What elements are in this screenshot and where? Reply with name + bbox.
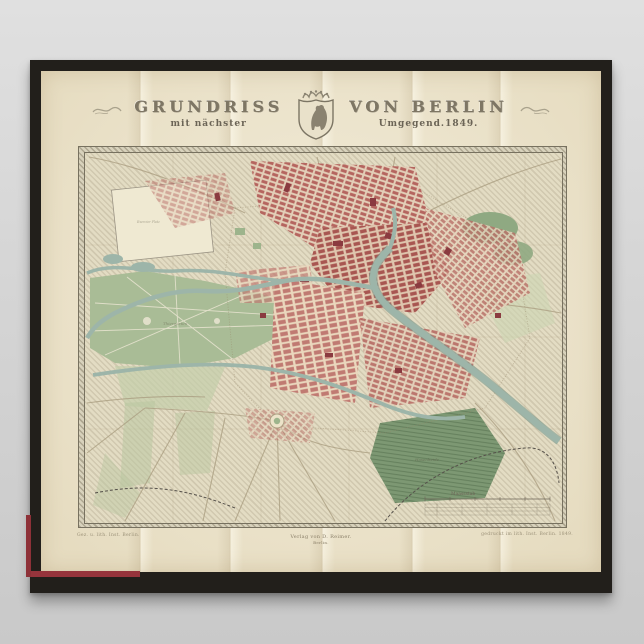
title-grundriss: GRUNDRISS: [134, 97, 283, 116]
imprint-publisher-city: Berlin.: [41, 540, 601, 546]
flourish-left-icon: [92, 103, 122, 117]
red-book-edge-vertical: [26, 515, 31, 577]
map-inner-border: Maassstab: [84, 152, 563, 524]
title-block: GRUNDRISS mit nächster VON BERLIN Umgege…: [41, 89, 601, 145]
scale-label: Maassstab: [451, 491, 475, 497]
title-left-column: GRUNDRISS mit nächster: [134, 97, 283, 129]
map-frame: Maassstab: [78, 146, 567, 528]
title-von-berlin: VON BERLIN: [349, 97, 508, 116]
subtitle-mit-naechster: mit nächster: [171, 119, 247, 129]
subtitle-umgegend-1849: Umgegend.1849.: [379, 119, 479, 129]
belle-alliance-platz: [270, 414, 284, 428]
imprint-right: gedruckt im lith. Inst. Berlin. 1849.: [481, 532, 573, 537]
hasenheide-label: Hasenheide: [414, 457, 440, 462]
thiergarten-label: Thiergarten: [163, 321, 188, 326]
map-paper-sheet: GRUNDRISS mit nächster VON BERLIN Umgege…: [41, 71, 601, 572]
exercier-platz-label: Exercier Platz: [136, 220, 160, 224]
title-right-column: VON BERLIN Umgegend.1849.: [349, 97, 508, 129]
framed-map-poster: GRUNDRISS mit nächster VON BERLIN Umgege…: [30, 60, 612, 593]
red-book-edge-horizontal: [30, 571, 140, 577]
berlin-city-map-graphic: Maassstab: [85, 153, 562, 523]
berlin-coat-of-arms-icon: [295, 89, 337, 141]
flourish-right-icon: [520, 103, 550, 117]
